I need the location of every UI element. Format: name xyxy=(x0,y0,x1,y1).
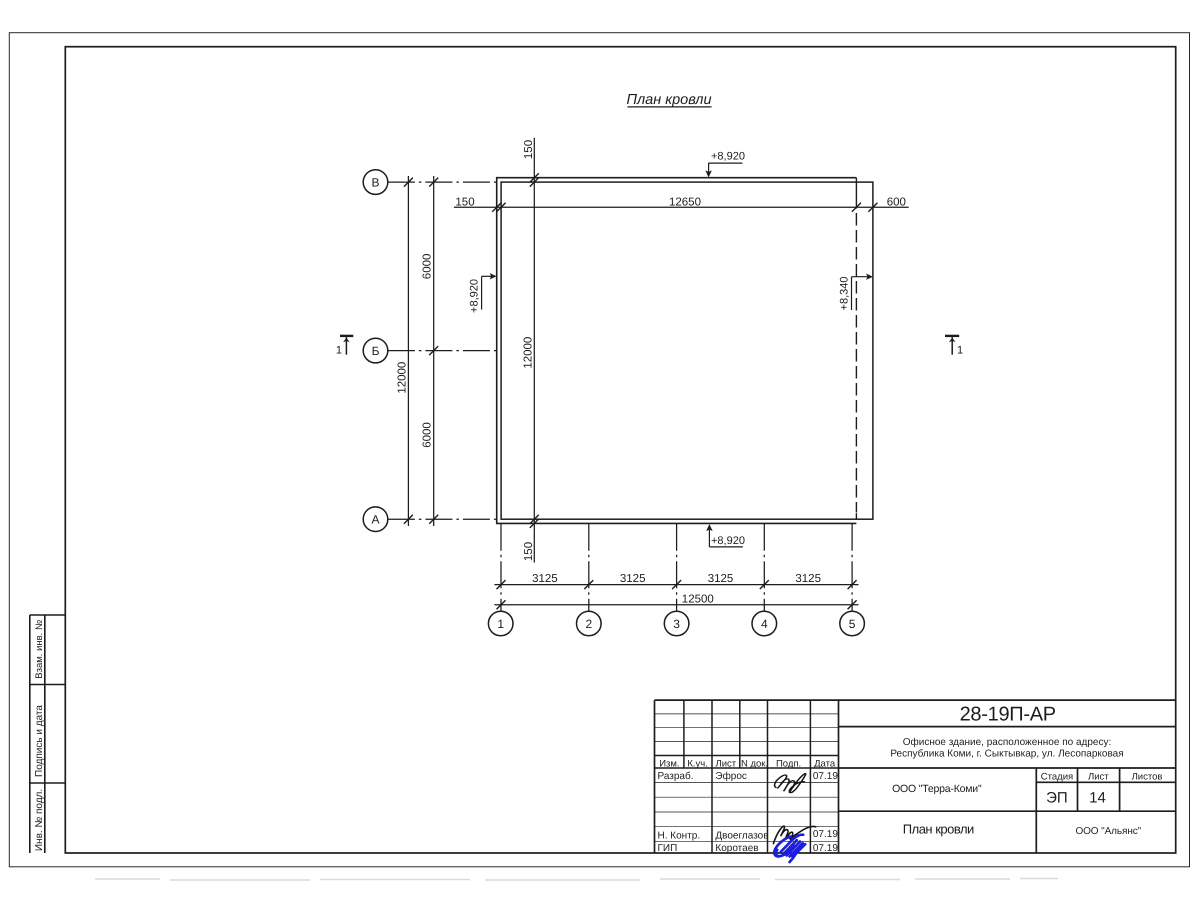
svg-text:4: 4 xyxy=(761,617,768,631)
svg-text:ООО "Альянс": ООО "Альянс" xyxy=(1075,826,1141,837)
svg-text:150: 150 xyxy=(455,197,474,209)
svg-text:+8,340: +8,340 xyxy=(839,277,851,311)
svg-text:В: В xyxy=(371,176,379,190)
svg-text:3125: 3125 xyxy=(620,573,646,585)
svg-text:А: А xyxy=(371,513,379,527)
svg-text:План кровли: План кровли xyxy=(626,92,711,108)
svg-text:Эфрос: Эфрос xyxy=(715,771,747,782)
svg-text:150: 150 xyxy=(523,542,535,561)
svg-text:Взам. инв. №: Взам. инв. № xyxy=(34,620,45,679)
svg-text:2: 2 xyxy=(585,617,592,631)
svg-text:150: 150 xyxy=(523,140,535,159)
svg-text:Республика Коми, г. Сыктывкар,: Республика Коми, г. Сыктывкар, ул. Лесоп… xyxy=(890,748,1123,759)
svg-text:+8,920: +8,920 xyxy=(711,150,745,162)
svg-text:1: 1 xyxy=(336,344,342,356)
svg-text:12000: 12000 xyxy=(396,362,408,394)
svg-text:07.19: 07.19 xyxy=(813,829,838,840)
svg-text:Офисное здание, расположенное: Офисное здание, расположенное по адресу: xyxy=(903,737,1112,748)
svg-text:600: 600 xyxy=(887,197,906,209)
svg-text:Стадия: Стадия xyxy=(1041,772,1073,783)
svg-text:28-19П-АР: 28-19П-АР xyxy=(960,704,1056,726)
svg-text:Дата: Дата xyxy=(814,758,836,769)
svg-text:07.19: 07.19 xyxy=(813,843,838,854)
svg-text:12500: 12500 xyxy=(682,593,714,605)
svg-text:1: 1 xyxy=(497,617,504,631)
svg-text:Подп.: Подп. xyxy=(776,758,801,769)
svg-text:Подпись и дата: Подпись и дата xyxy=(34,705,45,777)
svg-text:14: 14 xyxy=(1089,790,1106,807)
svg-text:ООО "Терра-Коми": ООО "Терра-Коми" xyxy=(892,783,982,795)
svg-text:Н. Контр.: Н. Контр. xyxy=(658,830,701,841)
svg-text:Инв. № подл.: Инв. № подл. xyxy=(34,789,45,851)
svg-text:12650: 12650 xyxy=(669,197,701,209)
svg-text:6000: 6000 xyxy=(422,254,434,280)
svg-text:+8,920: +8,920 xyxy=(711,535,745,547)
svg-text:N док.: N док. xyxy=(741,758,768,769)
svg-text:Листов: Листов xyxy=(1132,772,1163,783)
svg-text:3125: 3125 xyxy=(708,573,734,585)
svg-text:План кровли: План кровли xyxy=(903,821,974,836)
svg-text:Изм.: Изм. xyxy=(659,758,679,769)
svg-text:12000: 12000 xyxy=(522,337,534,369)
svg-text:07.19: 07.19 xyxy=(813,771,838,782)
svg-text:1: 1 xyxy=(957,344,963,356)
svg-text:3125: 3125 xyxy=(532,573,558,585)
svg-text:ГИП: ГИП xyxy=(658,843,678,854)
svg-text:+8,920: +8,920 xyxy=(469,279,481,313)
svg-text:6000: 6000 xyxy=(422,422,434,448)
svg-text:Лист: Лист xyxy=(1088,772,1109,783)
svg-text:Двоеглазов: Двоеглазов xyxy=(715,830,768,841)
svg-text:Лист: Лист xyxy=(715,758,736,769)
svg-text:Коротаев: Коротаев xyxy=(715,843,758,854)
svg-text:5: 5 xyxy=(849,617,856,631)
svg-text:Б: Б xyxy=(372,344,380,358)
svg-text:К.уч.: К.уч. xyxy=(687,758,708,769)
svg-text:3125: 3125 xyxy=(795,573,821,585)
svg-text:Разраб.: Разраб. xyxy=(658,771,694,782)
svg-text:ЭП: ЭП xyxy=(1046,790,1068,807)
svg-text:3: 3 xyxy=(673,617,680,631)
